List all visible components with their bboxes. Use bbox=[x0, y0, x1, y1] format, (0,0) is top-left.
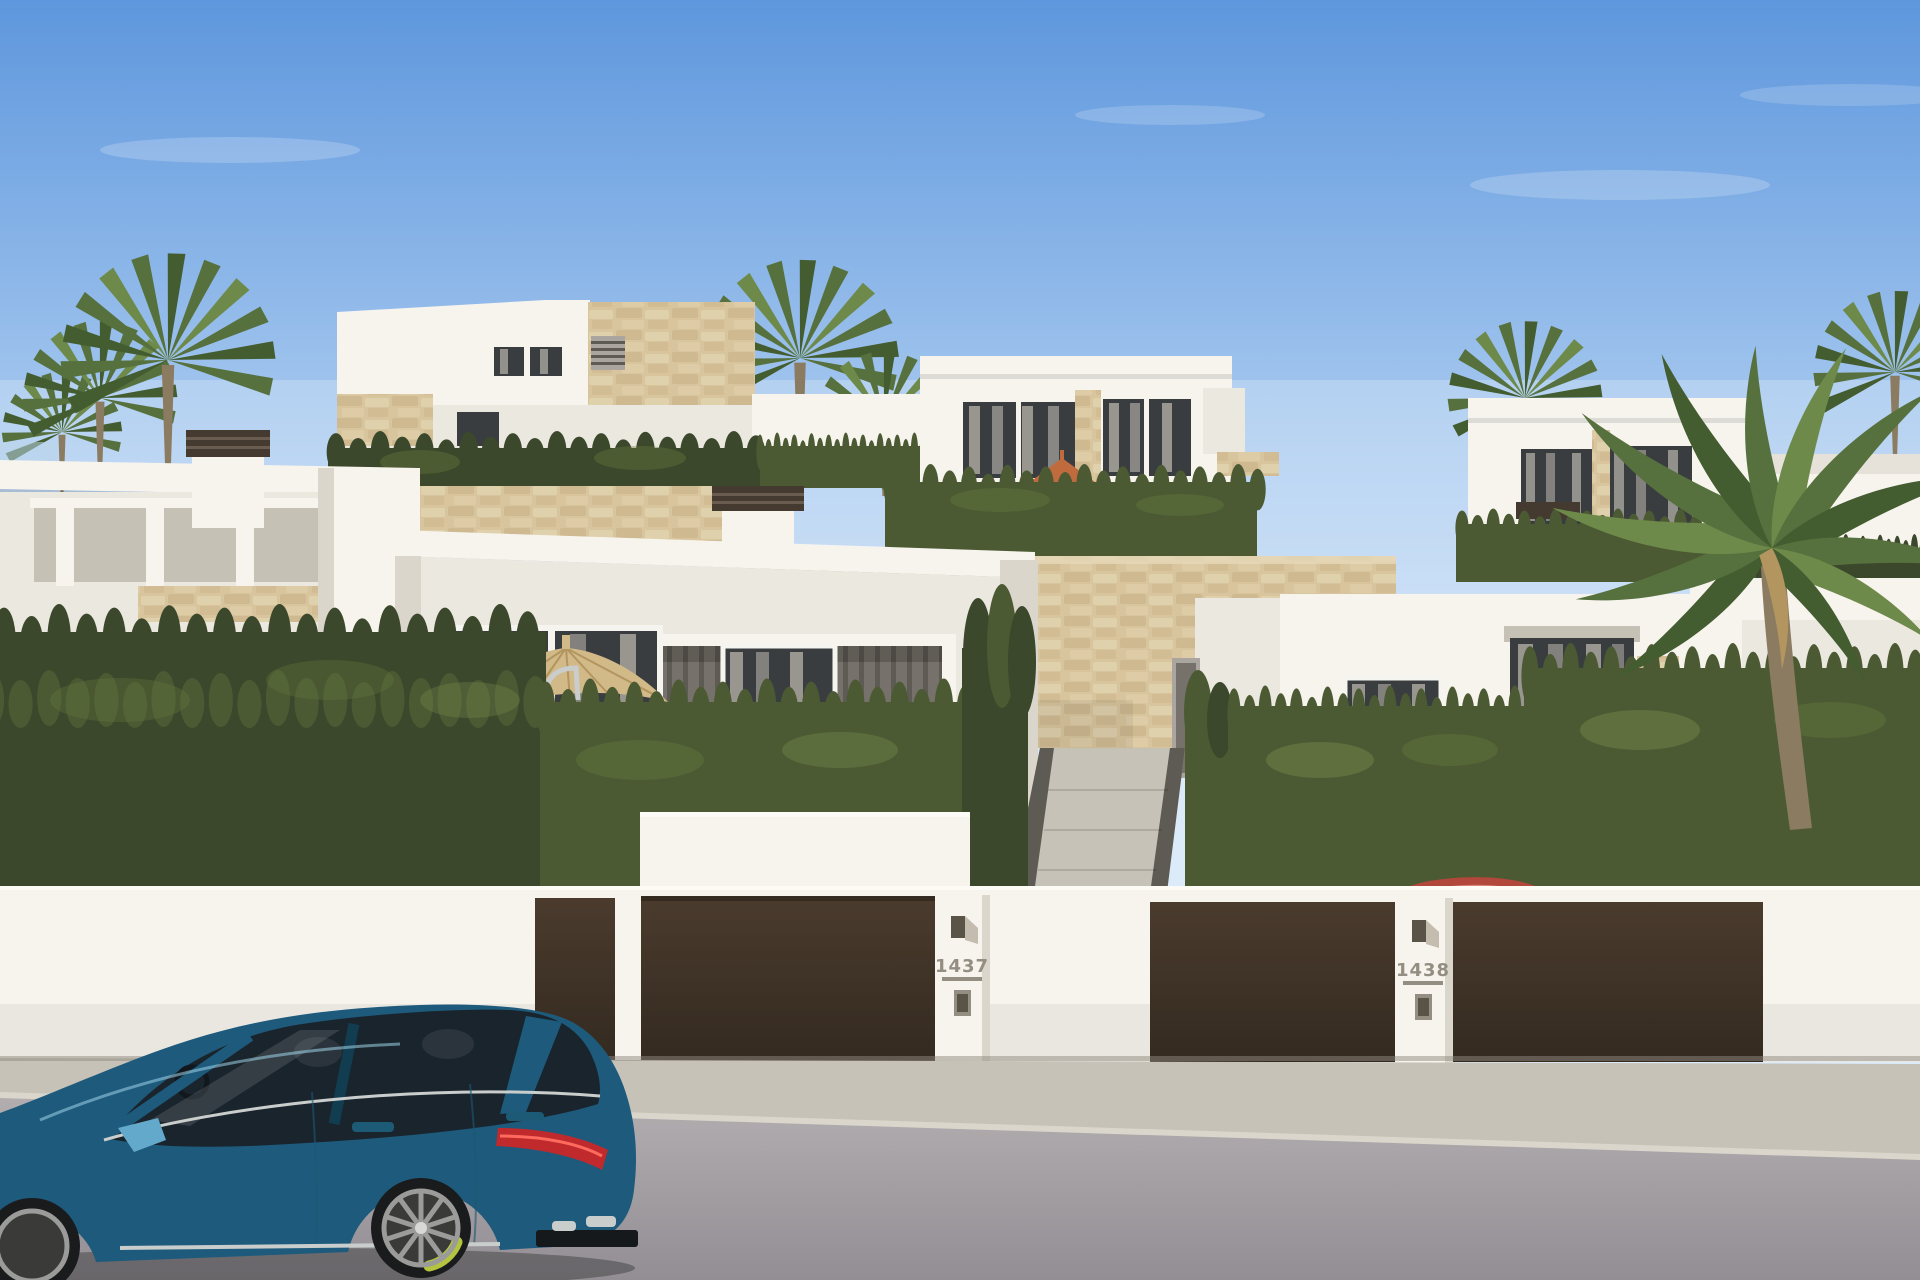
alley-side-hedge bbox=[1184, 670, 1233, 908]
house-number-1438: 1438 bbox=[1396, 960, 1450, 981]
number-underline bbox=[942, 977, 982, 981]
rear-wheel bbox=[371, 1178, 471, 1278]
upper-left-windows bbox=[494, 347, 562, 376]
gate-driveway-1437 bbox=[641, 896, 935, 1062]
chimney-1437 bbox=[712, 486, 804, 558]
louver-vent bbox=[591, 336, 625, 370]
gate-driveway-1438-right bbox=[1453, 902, 1763, 1062]
villa-back-center bbox=[884, 356, 1279, 566]
house-number-post-1438: 1438 bbox=[1395, 898, 1453, 1063]
courtyard-wall-edge bbox=[640, 812, 970, 817]
rear-diffuser bbox=[536, 1230, 638, 1247]
glass-balustrade bbox=[0, 442, 58, 462]
back-right-wing bbox=[1203, 388, 1245, 454]
garden-hedge-far-right bbox=[1521, 643, 1920, 908]
back-center-window-right bbox=[1103, 399, 1191, 476]
gate-pier bbox=[615, 892, 641, 1062]
back-center-fascia-shadow bbox=[920, 374, 1232, 379]
street-wall-top-highlight bbox=[0, 886, 1920, 890]
villa-street-rendering: 1437 1438 bbox=[0, 0, 1920, 1280]
exhaust-pipe bbox=[552, 1221, 576, 1231]
garden-hedge-left bbox=[0, 604, 547, 922]
door-handle-front bbox=[352, 1122, 394, 1132]
stone-planter bbox=[1217, 452, 1279, 476]
garden-hedge-right bbox=[1227, 686, 1537, 907]
car-seat bbox=[422, 1029, 474, 1059]
house-number-1437: 1437 bbox=[935, 956, 989, 977]
house-number-post-1437: 1437 bbox=[935, 895, 990, 1063]
mail-slot bbox=[1412, 920, 1426, 942]
exhaust-pipe bbox=[586, 1216, 616, 1227]
gate-1437-top-rail bbox=[641, 896, 935, 901]
door-handle-rear bbox=[506, 1112, 544, 1121]
chimney-left bbox=[186, 430, 270, 528]
back-right-fascia-shadow bbox=[1468, 418, 1752, 423]
number-underline bbox=[1403, 981, 1443, 985]
mail-slot bbox=[951, 916, 965, 938]
cypress-columns bbox=[962, 584, 1036, 910]
parasol-finial bbox=[562, 635, 570, 649]
gate-driveway-1438-left bbox=[1150, 902, 1395, 1062]
